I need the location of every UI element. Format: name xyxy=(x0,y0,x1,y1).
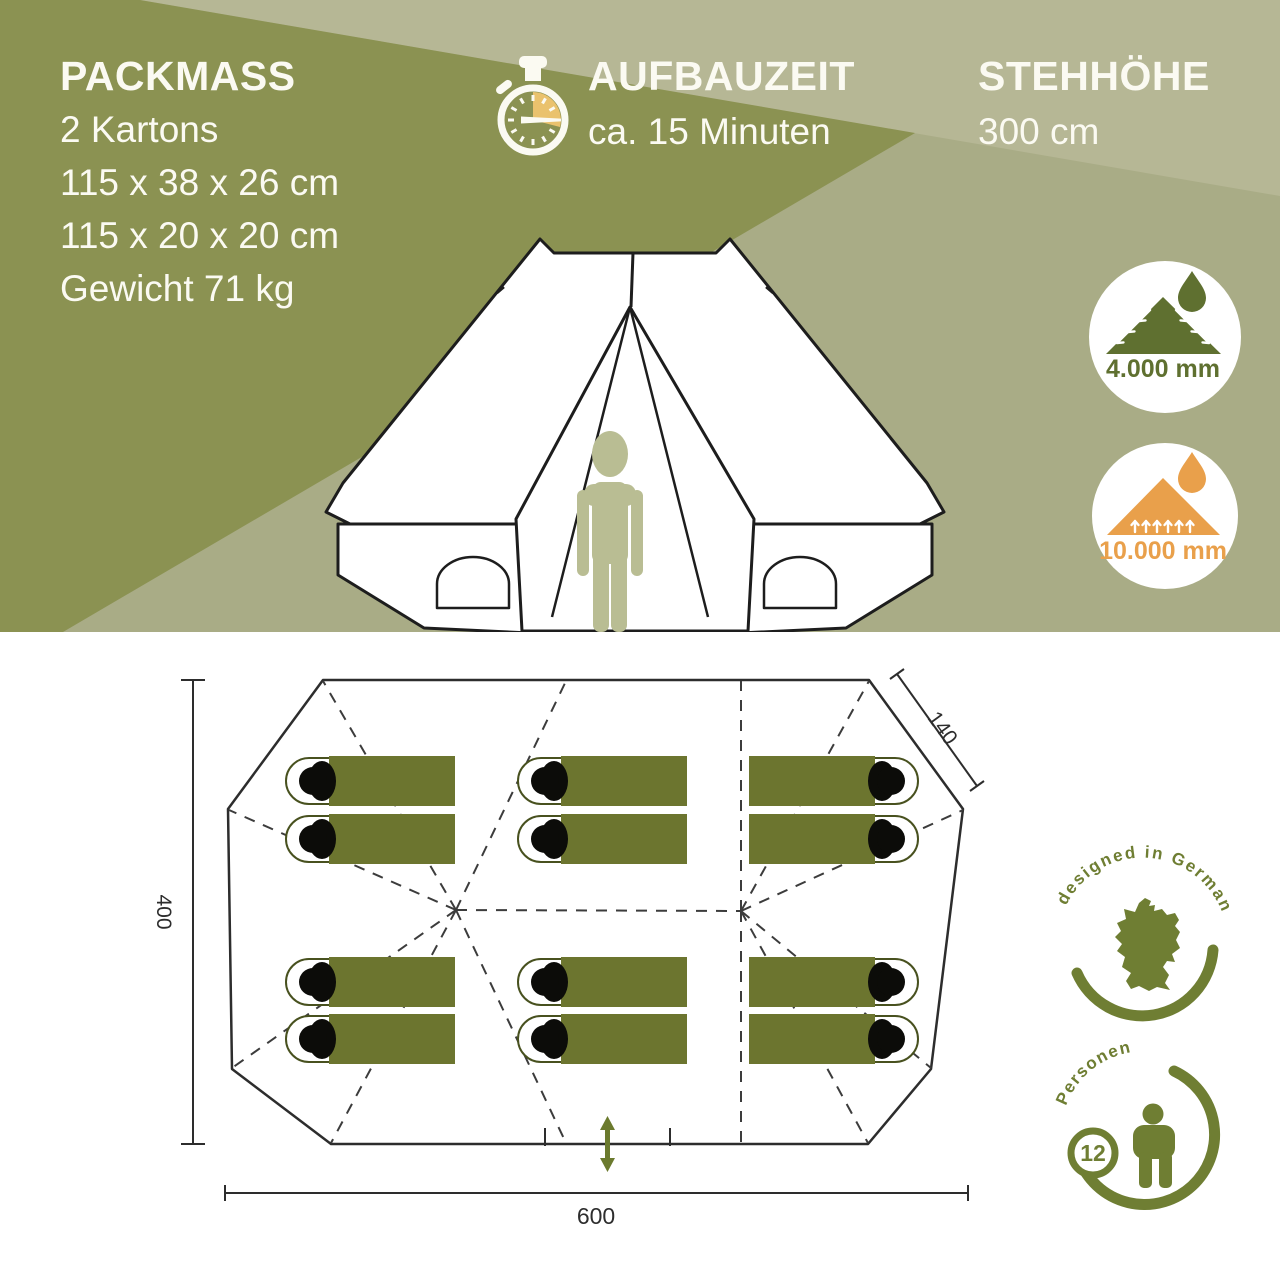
tent-footprint-outline xyxy=(228,680,963,1144)
floorplan-graphics: 400 600 140 designed in Germany 12 xyxy=(0,632,1280,1280)
watercolumn-floor-value: 10.000 mm xyxy=(1099,537,1227,565)
spec-banner: 4.000 mm 10.000 mm PACKMASS 2 Kartons 11… xyxy=(0,0,1280,632)
stehhoehe-title: STEHHÖHE xyxy=(978,54,1210,99)
watercolumn-roof-value: 4.000 mm xyxy=(1106,355,1220,383)
dimension-width xyxy=(181,680,205,1144)
aufbauzeit-value: ca. 15 Minuten xyxy=(588,112,831,153)
dimension-length xyxy=(225,1185,968,1201)
packmass-line-2: 115 x 38 x 26 cm xyxy=(60,163,339,204)
germany-map-icon xyxy=(1115,898,1180,991)
packmass-line-1: 2 Kartons xyxy=(60,110,218,151)
dimension-side-label: 140 xyxy=(923,707,962,749)
tent-right-window xyxy=(764,557,836,608)
floorplan-section: 400 600 140 designed in Germany 12 xyxy=(0,632,1280,1280)
packmass-line-3: 115 x 20 x 20 cm xyxy=(60,216,339,257)
dimension-length-label: 600 xyxy=(577,1203,615,1229)
watercolumn-floor-badge: 10.000 mm xyxy=(1092,443,1238,589)
tent-left-window xyxy=(437,557,509,608)
persons-label: Personen xyxy=(1052,1037,1133,1107)
svg-text:Personen: Personen xyxy=(1052,1037,1133,1107)
persons-count: 12 xyxy=(1080,1140,1106,1166)
dimension-width-label: 400 xyxy=(152,894,175,929)
packmass-line-4: Gewicht 71 kg xyxy=(60,269,294,310)
tent-center-pole xyxy=(631,253,633,307)
watercolumn-roof-badge: 4.000 mm xyxy=(1089,261,1241,413)
aufbauzeit-title: AUFBAUZEIT xyxy=(588,54,855,99)
person-icon xyxy=(1133,1104,1175,1189)
packmass-title: PACKMASS xyxy=(60,54,296,99)
persons-badge: 12 Personen xyxy=(1052,1037,1215,1204)
stehhoehe-value: 300 cm xyxy=(978,112,1099,153)
